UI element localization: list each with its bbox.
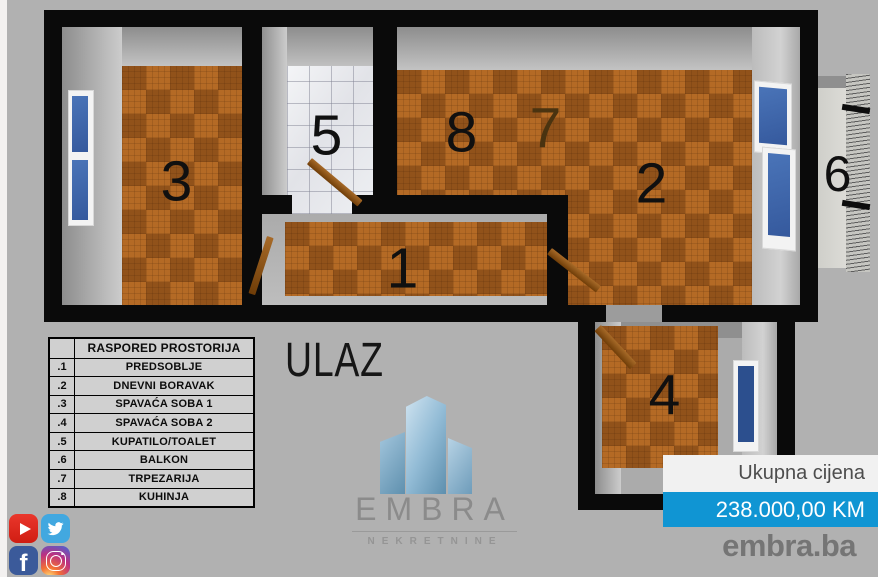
legend-name: SPAVAĆA SOBA 1 [75,396,253,414]
wall-exterior-bottom [44,305,818,322]
wall-exterior-right [800,10,818,322]
twitter-icon[interactable] [41,514,70,543]
wall-exterior-left [44,10,62,322]
entrance-label: ULAZ [285,333,384,388]
legend-num: .3 [50,396,75,414]
room-label-5: 5 [311,108,342,165]
legend-num: .8 [50,489,75,507]
legend-name: KUHINJA [75,489,253,507]
room-label-3: 3 [161,154,192,211]
room-label-4: 4 [649,368,680,425]
legend-row: .6 BALKON [50,450,253,469]
legend-num: .2 [50,377,75,395]
legend-row: .8 KUHINJA [50,488,253,507]
legend-name: TRPEZARIJA [75,470,253,488]
logo-divider [352,531,517,532]
legend-num: .4 [50,414,75,432]
legend-num: .6 [50,451,75,469]
logo-brand-text: EMBRA [344,492,519,527]
price-label: Ukupna cijena [663,455,878,492]
legend-num: .7 [50,470,75,488]
logo-building-icon [380,432,405,494]
room-legend-table: RASPORED PROSTORIJA .1 PREDSOBLJE .2 DNE… [48,337,255,508]
price-value-box: 238.000,00 KM [663,492,878,527]
balcony-door [762,147,796,252]
legend-name: PREDSOBLJE [75,359,253,377]
room-label-6: 6 [824,149,851,199]
legend-row: .1 PREDSOBLJE [50,358,253,377]
room-label-8: 8 [446,105,477,162]
room3-window [68,90,94,226]
facebook-icon[interactable]: f [9,546,38,575]
instagram-lens-glyph [50,555,62,567]
instagram-icon[interactable] [41,546,70,575]
price-label-box: Ukupna cijena [663,455,878,492]
instagram-dot-glyph [61,553,64,556]
legend-num: .1 [50,359,75,377]
living-window [754,80,792,155]
legend-row: .3 SPAVAĆA SOBA 1 [50,395,253,414]
wall-hall-top [242,195,292,214]
play-glyph [20,523,31,535]
legend-name: BALKON [75,451,253,469]
legend-name: KUPATILO/TOALET [75,433,253,451]
room4-window [733,360,759,452]
room-label-1: 1 [387,241,418,298]
wall-exterior-top [44,10,818,27]
facebook-f-glyph: f [20,550,28,577]
legend-row: .4 SPAVAĆA SOBA 2 [50,413,253,432]
wall-room5-right [373,10,397,214]
room5-left-wall [261,27,287,214]
youtube-icon[interactable] [9,514,38,543]
room-label-2: 2 [636,156,667,213]
legend-row: .7 TRPEZARIJA [50,469,253,488]
legend-header-row: RASPORED PROSTORIJA [50,339,253,358]
room4-door-opening [606,305,662,322]
living-back-wall [397,27,800,71]
embra-logo: EMBRA NEKRETNINE [344,390,519,515]
legend-row: .5 KUPATILO/TOALET [50,432,253,451]
left-edge-strip [0,0,7,577]
logo-building-icon [406,396,446,494]
legend-name: DNEVNI BORAVAK [75,377,253,395]
wall [578,322,595,510]
flyer-canvas: 3 5 8 7 2 1 4 6 ULAZ RASPORED PROSTORIJA… [0,0,878,577]
twitter-bird-glyph [46,519,65,538]
legend-name: SPAVAĆA SOBA 2 [75,414,253,432]
legend-num: .5 [50,433,75,451]
legend-title: RASPORED PROSTORIJA [75,339,253,358]
wall-hall-top [352,195,568,214]
logo-subtitle: NEKRETNINE [344,536,519,547]
legend-row: .2 DNEVNI BORAVAK [50,376,253,395]
website-text: embra.ba [650,528,856,564]
room-label-7: 7 [530,101,561,158]
legend-header-num-cell [50,339,75,358]
price-value: 238.000,00 KM [663,492,878,527]
logo-building-icon [448,438,472,494]
